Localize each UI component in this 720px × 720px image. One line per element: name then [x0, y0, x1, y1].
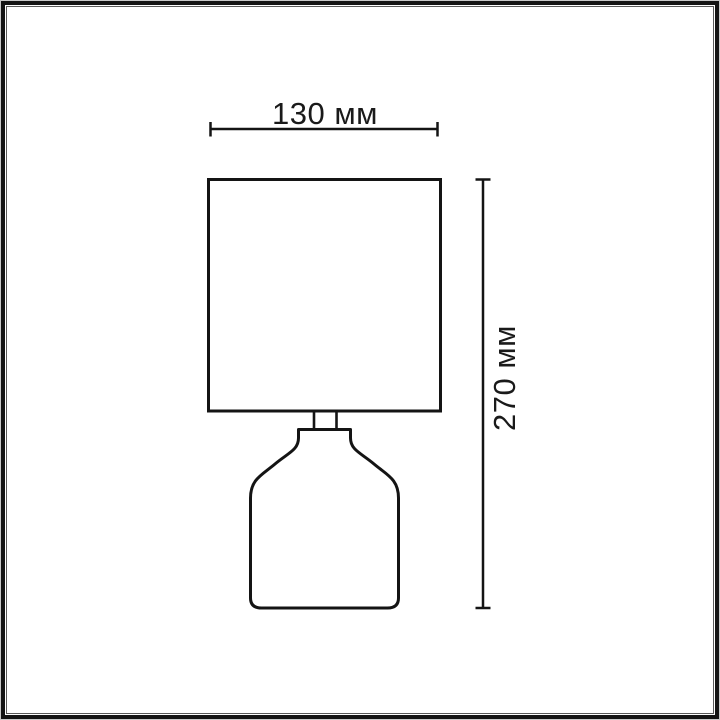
lampshade-outline [209, 180, 441, 412]
height-dimension-label: 270 мм [487, 325, 522, 431]
lamp-technical-drawing: 130 мм 270 мм [0, 0, 720, 720]
width-dimension-label: 130 мм [272, 96, 378, 131]
lamp-base-outline [251, 430, 399, 609]
lamp-neck [314, 411, 337, 430]
diagram-canvas: 130 мм 270 мм [0, 0, 720, 720]
